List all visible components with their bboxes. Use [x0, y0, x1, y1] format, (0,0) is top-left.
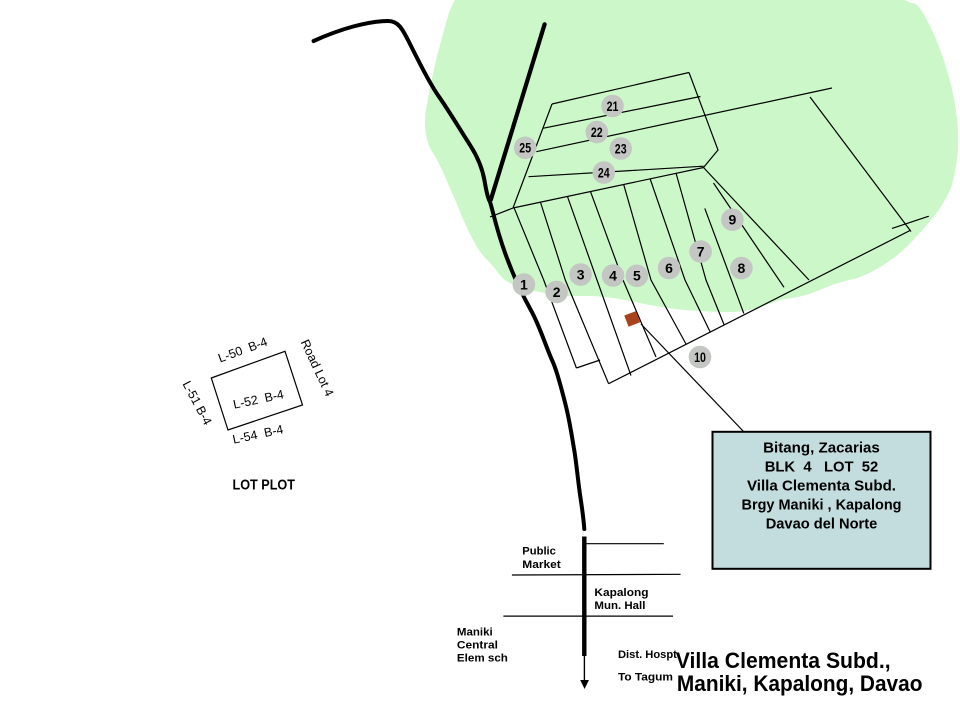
svg-text:Market: Market — [522, 559, 561, 571]
svg-text:Kapalong: Kapalong — [594, 587, 648, 599]
svg-text:Dist. Hospt: Dist. Hospt — [618, 649, 677, 661]
svg-text:L-51 B-4: L-51 B-4 — [180, 379, 215, 428]
svg-text:24: 24 — [598, 164, 610, 180]
svg-text:Elem sch: Elem sch — [457, 653, 508, 665]
svg-text:Central: Central — [457, 640, 498, 652]
svg-text:Maniki, Kapalong, Davao: Maniki, Kapalong, Davao — [677, 671, 923, 696]
svg-text:25: 25 — [519, 140, 531, 156]
svg-text:To Tagum: To Tagum — [618, 672, 673, 684]
svg-text:Villa Clementa Subd.,: Villa Clementa Subd., — [676, 648, 891, 673]
svg-text:9: 9 — [729, 212, 737, 228]
svg-text:Mun. Hall: Mun. Hall — [594, 600, 645, 612]
svg-text:7: 7 — [697, 244, 705, 260]
svg-text:Road Lot 4: Road Lot 4 — [298, 337, 337, 398]
svg-text:L-52 B-4: L-52 B-4 — [232, 387, 285, 411]
svg-text:Brgy Maniki , Kapalong: Brgy Maniki , Kapalong — [742, 497, 902, 514]
svg-text:21: 21 — [607, 98, 619, 114]
svg-text:Bitang, Zacarias: Bitang, Zacarias — [763, 440, 880, 457]
svg-text:Davao del Norte: Davao del Norte — [766, 516, 878, 533]
svg-text:5: 5 — [633, 268, 641, 284]
svg-text:Villa Clementa Subd.: Villa Clementa Subd. — [747, 478, 896, 495]
svg-text:1: 1 — [520, 276, 528, 292]
svg-text:Maniki: Maniki — [457, 627, 493, 639]
svg-text:BLK 4 LOT 52: BLK 4 LOT 52 — [765, 459, 879, 476]
svg-text:L-50 B-4: L-50 B-4 — [216, 335, 269, 366]
svg-text:23: 23 — [615, 140, 627, 156]
svg-text:6: 6 — [665, 260, 673, 276]
svg-text:22: 22 — [591, 124, 603, 140]
svg-text:3: 3 — [577, 266, 585, 282]
svg-text:2: 2 — [553, 284, 561, 300]
svg-text:10: 10 — [694, 349, 706, 365]
svg-text:LOT PLOT: LOT PLOT — [233, 477, 296, 494]
svg-text:Public: Public — [522, 546, 556, 558]
svg-text:8: 8 — [738, 260, 746, 276]
svg-text:4: 4 — [609, 267, 617, 283]
